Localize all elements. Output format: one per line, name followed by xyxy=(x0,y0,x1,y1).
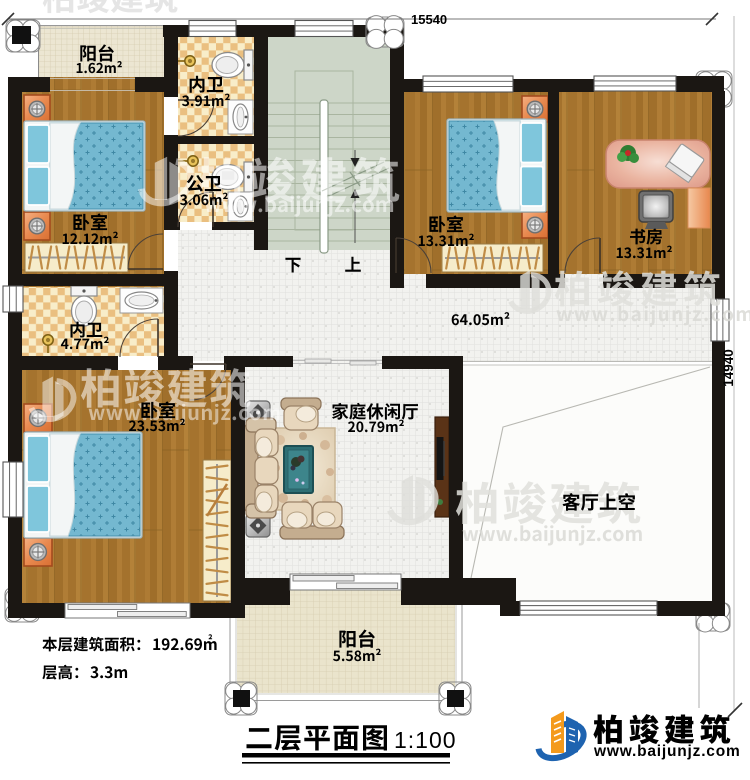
svg-text:14940: 14940 xyxy=(721,349,736,387)
svg-text:15540: 15540 xyxy=(411,12,447,27)
svg-text:www.baijunjz.com: www.baijunjz.com xyxy=(593,743,741,760)
svg-text:1:100: 1:100 xyxy=(394,727,457,753)
